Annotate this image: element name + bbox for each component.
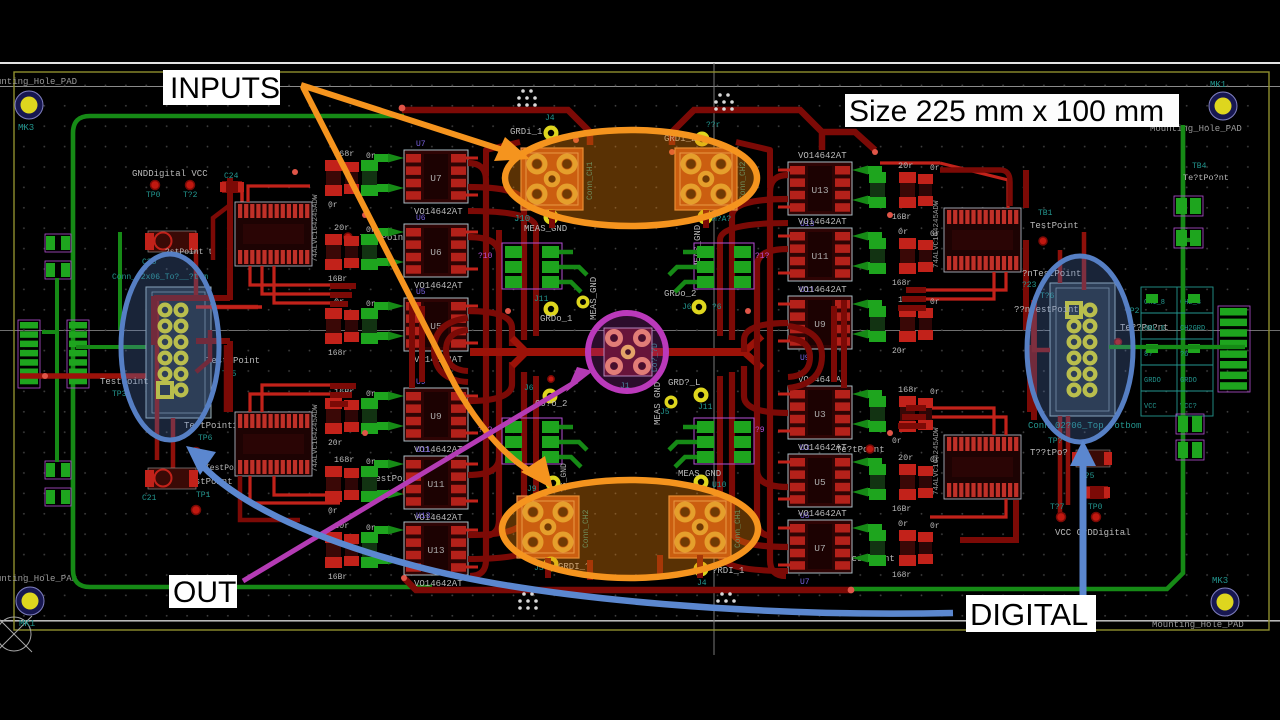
svg-text:?23: ?23 [1022, 281, 1037, 290]
svg-text:TP1: TP1 [196, 491, 211, 500]
svg-text:TestPoint: TestPoint [1030, 221, 1079, 231]
svg-text:GRDO: GRDO [1144, 377, 1161, 385]
svg-text:Mounting_Hole_PAD: Mounting_Hole_PAD [1152, 620, 1244, 630]
svg-text:0r: 0r [328, 201, 338, 210]
svg-text:J10: J10 [514, 214, 530, 224]
svg-text:Size 225 mm x 100 mm: Size 225 mm x 100 mm [849, 95, 1164, 128]
svg-text:U3: U3 [814, 409, 826, 420]
svg-text:U5: U5 [814, 477, 826, 488]
svg-text:MEAS_GND: MEAS_GND [524, 224, 567, 234]
svg-text:20r: 20r [898, 453, 913, 463]
svg-text:DIGITAL: DIGITAL [970, 597, 1088, 632]
svg-text:GRD?_L: GRD?_L [668, 378, 700, 388]
svg-text:U6: U6 [430, 247, 442, 258]
svg-text:VO14642AT: VO14642AT [798, 509, 847, 519]
svg-text:J6: J6 [682, 303, 692, 312]
svg-text:U9: U9 [814, 319, 826, 330]
svg-text:0r: 0r [930, 298, 940, 307]
svg-text:U7: U7 [814, 543, 825, 554]
svg-text:20r: 20r [328, 439, 343, 448]
svg-text:J11: J11 [698, 403, 713, 412]
svg-text:??r: ??r [706, 121, 721, 130]
svg-text:U11: U11 [416, 446, 431, 455]
svg-text:0r: 0r [366, 152, 376, 161]
svg-text:16Br: 16Br [892, 505, 911, 514]
svg-text:0r: 0r [898, 227, 908, 237]
svg-text:TB4: TB4 [1192, 162, 1207, 171]
svg-text:MEAS GND: MEAS GND [653, 382, 663, 425]
svg-text:168r: 168r [892, 279, 911, 288]
svg-text:TB1: TB1 [1038, 209, 1053, 218]
svg-text:T??tPo?: T??tPo? [1030, 448, 1068, 458]
svg-text:0r: 0r [366, 300, 376, 309]
svg-text:0r: 0r [892, 437, 902, 446]
svg-text:20r: 20r [898, 161, 913, 171]
svg-text:MEAS GND: MEAS GND [678, 469, 721, 479]
svg-text:TP0: TP0 [1088, 503, 1103, 512]
svg-text:0r: 0r [930, 388, 940, 397]
svg-text:U9: U9 [430, 411, 442, 422]
svg-text:0r: 0r [328, 507, 338, 516]
svg-text:J4: J4 [545, 114, 555, 123]
svg-text:GRL_6: GRL_6 [1144, 325, 1165, 333]
svg-text:GRDO: GRDO [1180, 377, 1197, 385]
svg-text:INPUTS: INPUTS [170, 72, 280, 105]
svg-text:MK3: MK3 [1212, 576, 1228, 586]
svg-text:U7: U7 [800, 578, 810, 587]
svg-text:MEAS_GND: MEAS_GND [589, 277, 599, 320]
svg-text:MK1: MK1 [1210, 80, 1226, 90]
svg-text:T?2: T?2 [183, 191, 198, 200]
svg-text:J4: J4 [697, 579, 707, 588]
svg-text:MK3: MK3 [18, 123, 34, 133]
svg-text:MK1: MK1 [19, 619, 35, 629]
svg-text:J6: J6 [524, 384, 534, 393]
svg-text:0r: 0r [366, 524, 376, 533]
svg-text:20r: 20r [334, 223, 349, 233]
svg-text:VCC: VCC [1144, 403, 1157, 411]
svg-text:U13: U13 [416, 512, 431, 521]
svg-text:0r: 0r [366, 458, 376, 467]
svg-text:?6: ?6 [712, 303, 722, 312]
svg-text:0r: 0r [898, 519, 908, 529]
svg-text:unting_Hole_PAD: unting_Hole_PAD [0, 574, 77, 584]
svg-text:U11: U11 [811, 251, 828, 262]
svg-text:?9: ?9 [755, 426, 765, 435]
svg-text:GRDi_1: GRDi_1 [510, 127, 542, 137]
svg-text:168r: 168r [328, 349, 347, 358]
svg-text:168r: 168r [334, 455, 354, 465]
svg-text:U6: U6 [416, 214, 426, 223]
svg-text:VO14642AT: VO14642AT [414, 579, 463, 589]
svg-text:U13: U13 [811, 185, 828, 196]
svg-text:TP0: TP0 [146, 191, 161, 200]
svg-text:?6: ?6 [1180, 351, 1188, 359]
svg-text:0r: 0r [930, 164, 940, 173]
svg-text:U7: U7 [416, 140, 426, 149]
svg-text:U7: U7 [430, 173, 441, 184]
svg-text:0r: 0r [930, 456, 940, 465]
svg-text:16Br: 16Br [328, 573, 347, 582]
svg-text:OUT: OUT [173, 576, 236, 609]
svg-text:TP6: TP6 [198, 434, 213, 443]
svg-text:0r: 0r [930, 522, 940, 531]
svg-text:C21: C21 [142, 494, 157, 503]
svg-text:VO14642AT: VO14642AT [798, 285, 847, 295]
svg-text:CH2GRD: CH2GRD [1180, 325, 1205, 333]
svg-text:GRDo_2: GRDo_2 [664, 289, 696, 299]
svg-text:U11: U11 [427, 479, 444, 490]
svg-text:T?7: T?7 [1050, 503, 1065, 512]
svg-text:GRDo_1: GRDo_1 [540, 314, 572, 324]
svg-text:?10: ?10 [478, 252, 493, 261]
svg-text:Te?tPo?nt: Te?tPo?nt [1183, 173, 1229, 183]
svg-text:20r: 20r [892, 347, 907, 356]
svg-text:74ALVC164245ADW: 74ALVC164245ADW [312, 194, 320, 262]
svg-text:16Br: 16Br [328, 275, 347, 284]
svg-text:VO14642AT: VO14642AT [798, 217, 847, 227]
svg-text:0r: 0r [930, 230, 940, 239]
svg-text:168r: 168r [898, 385, 918, 395]
svg-text:VCC G?DDigital: VCC G?DDigital [1055, 528, 1131, 538]
svg-text:VO14642AT: VO14642AT [798, 443, 847, 453]
svg-text:0r: 0r [366, 390, 376, 399]
svg-text:168r: 168r [892, 571, 911, 580]
svg-text:U13: U13 [427, 545, 444, 556]
svg-text:74ALVC164245ADW: 74ALVC164245ADW [312, 404, 320, 472]
svg-text:unting_Hole_PAD: unting_Hole_PAD [0, 77, 77, 87]
svg-text:J11: J11 [534, 295, 549, 304]
svg-text:VO14642AT: VO14642AT [798, 151, 847, 161]
svg-text:U5: U5 [416, 288, 426, 297]
svg-text:?1?: ?1? [755, 252, 770, 261]
svg-text:16Br: 16Br [892, 213, 911, 222]
svg-text:GNDDigital VCC: GNDDigital VCC [132, 169, 208, 179]
